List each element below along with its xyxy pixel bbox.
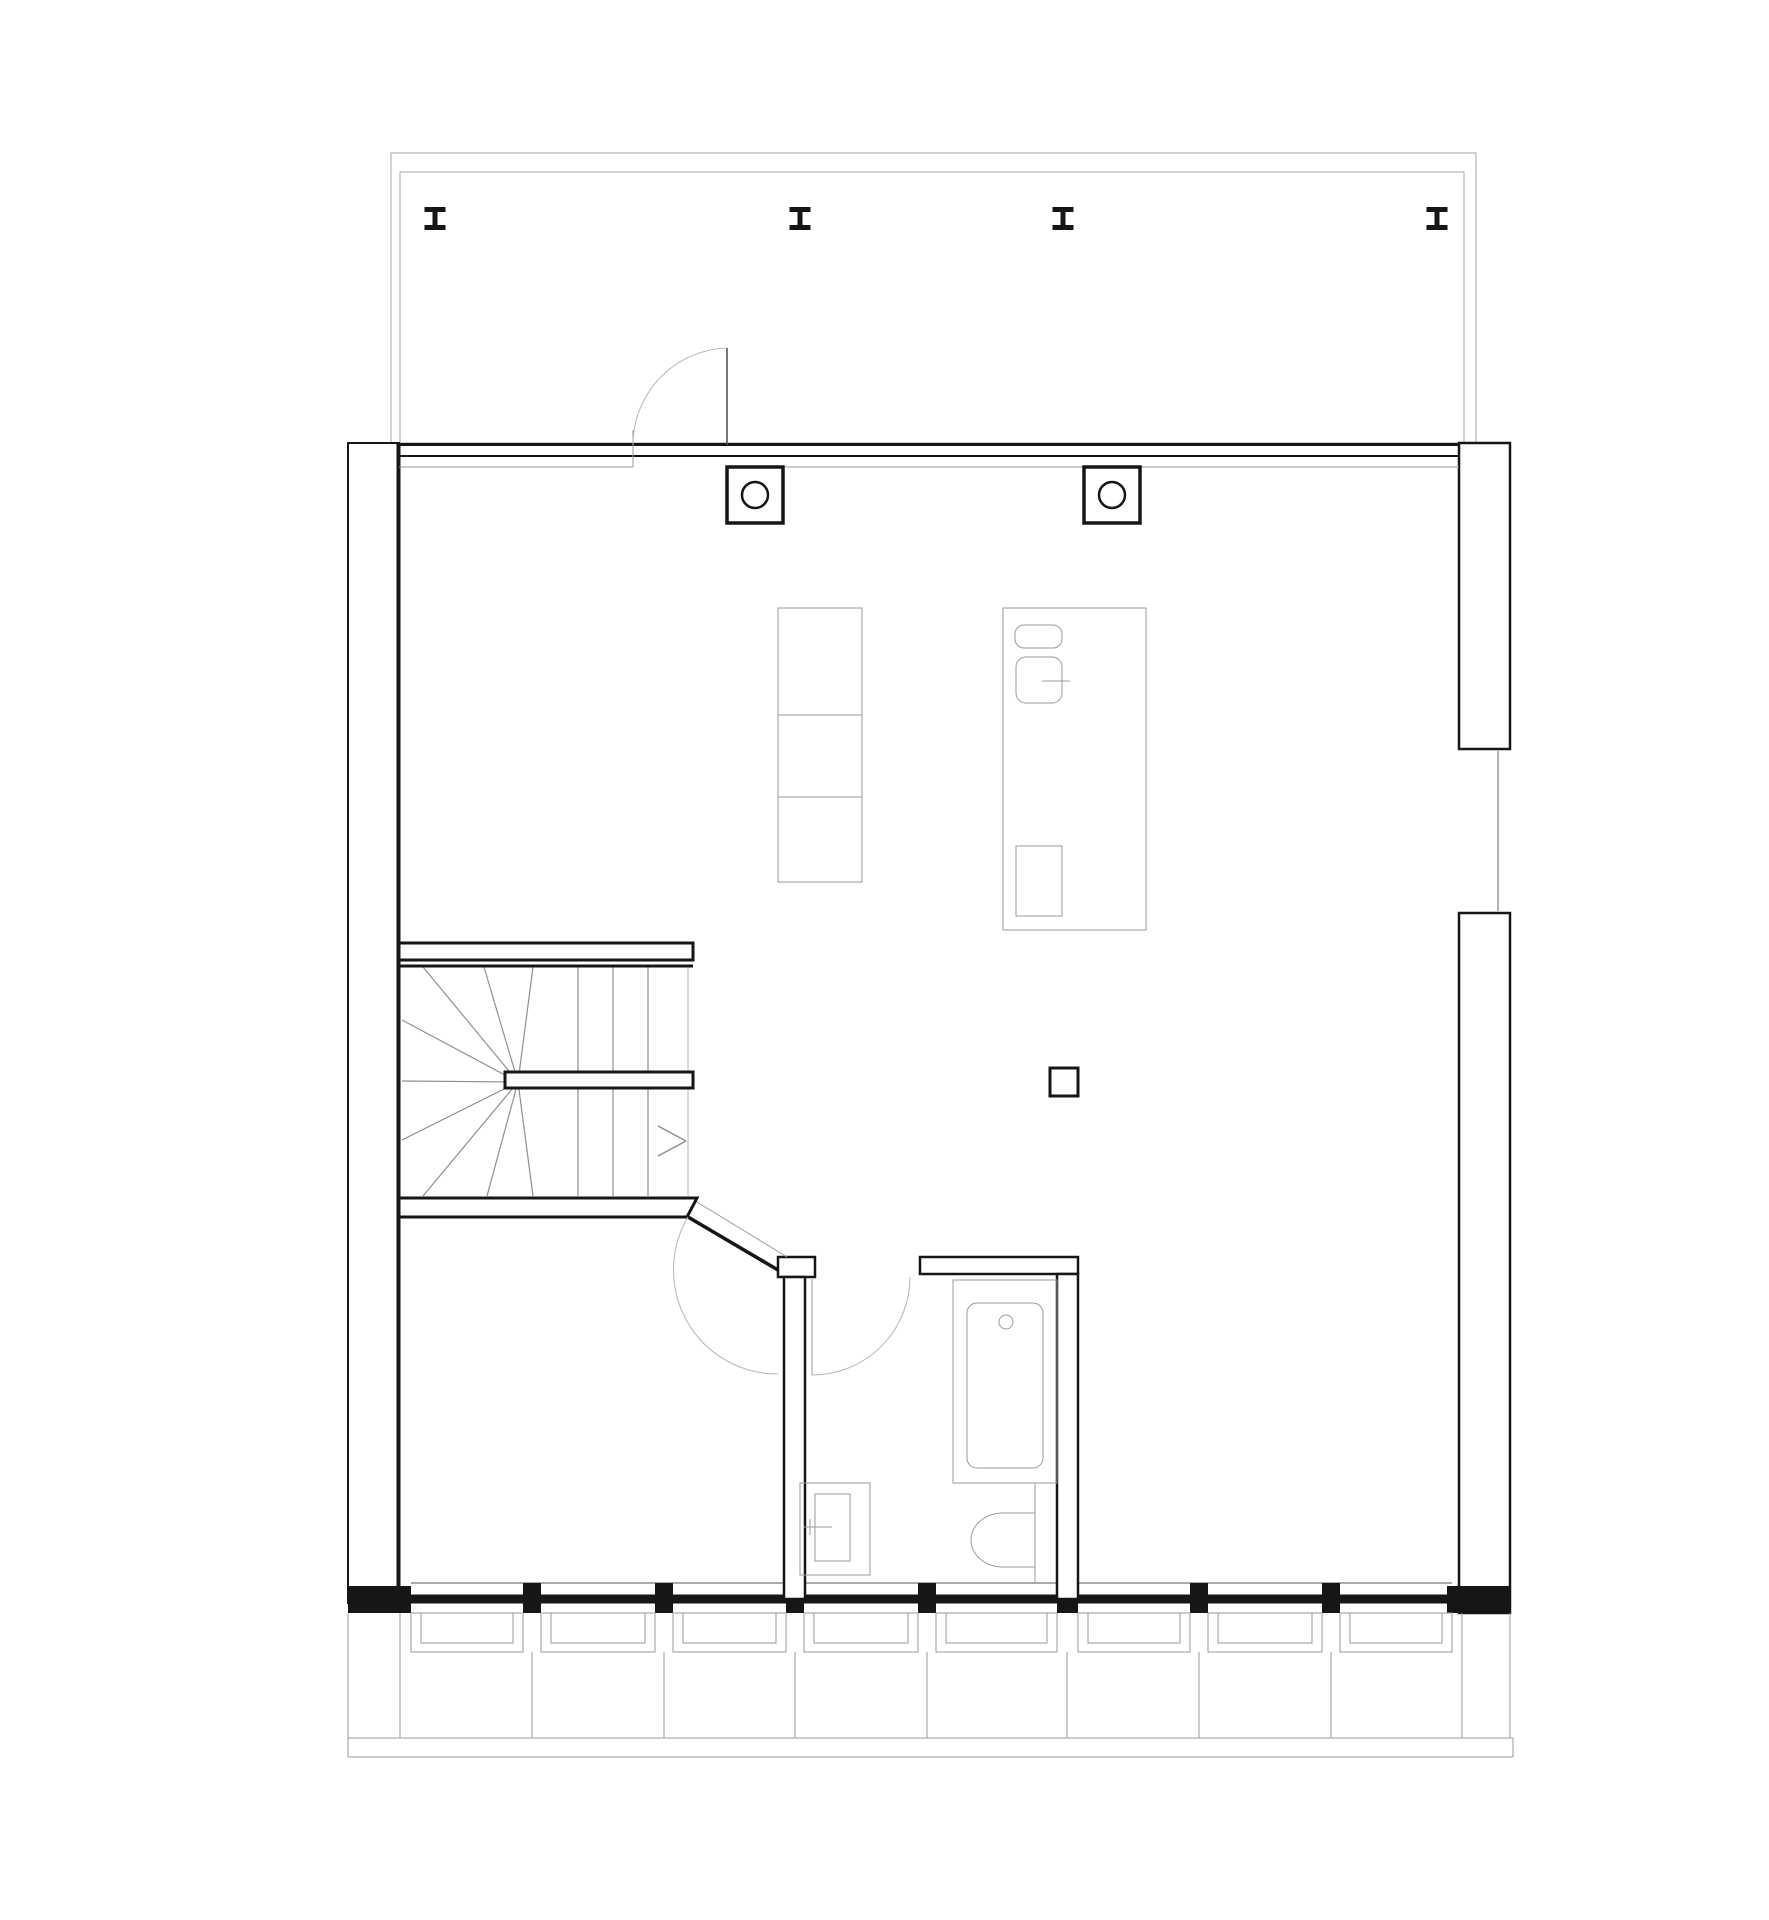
wall-corner-block bbox=[348, 1586, 411, 1613]
ibeam-web bbox=[433, 207, 438, 230]
ibeam-web bbox=[798, 207, 803, 230]
bottom-facade bbox=[348, 1583, 1513, 1757]
window-mullion bbox=[655, 1583, 673, 1613]
stair-handrail bbox=[505, 1072, 693, 1088]
winder-staircase bbox=[399, 943, 697, 1217]
column-circle bbox=[742, 482, 768, 508]
window-sill-inner bbox=[551, 1613, 645, 1643]
stair-tread-line bbox=[484, 967, 518, 1082]
bathtub-platform bbox=[953, 1280, 1057, 1483]
columns bbox=[727, 467, 1140, 1096]
window-sill-outer bbox=[541, 1613, 655, 1652]
window-sill-inner bbox=[1218, 1613, 1312, 1643]
left-exterior-wall bbox=[348, 443, 399, 1603]
bath-partitions bbox=[778, 1257, 1078, 1599]
furniture bbox=[778, 608, 1146, 930]
window-sill-outer bbox=[1340, 1613, 1452, 1652]
steel-ibeam-column bbox=[425, 207, 446, 230]
stair-direction-arrow bbox=[658, 1141, 686, 1156]
steel-ibeam-column bbox=[790, 207, 811, 230]
terrace-door-swing-arc bbox=[633, 348, 727, 445]
cabinet-stack bbox=[778, 608, 862, 882]
stair-tread-line bbox=[423, 1082, 518, 1196]
kitchen-sink-small bbox=[1015, 625, 1062, 648]
window-mullion bbox=[1190, 1583, 1208, 1613]
window-sill-inner bbox=[1088, 1613, 1180, 1643]
terrace bbox=[391, 153, 1476, 443]
window-sill-outer bbox=[673, 1613, 786, 1652]
window-sill-outer bbox=[1208, 1613, 1322, 1652]
column-circle bbox=[1099, 482, 1125, 508]
window-sill-outer bbox=[936, 1613, 1057, 1652]
stair-tread-line bbox=[518, 967, 533, 1082]
stair-direction-arrow bbox=[658, 1126, 686, 1141]
floor-plan-drawing bbox=[0, 0, 1769, 1920]
kitchen-sink-main bbox=[1016, 657, 1062, 703]
round-column-in-box bbox=[1084, 467, 1140, 523]
stair-tread-line bbox=[402, 1020, 518, 1082]
window-sill-inner bbox=[683, 1613, 776, 1643]
stair-tread-line bbox=[487, 1082, 518, 1196]
bathtub-drain bbox=[999, 1315, 1013, 1329]
window-mullion bbox=[1322, 1583, 1340, 1613]
wall-corner-block bbox=[1447, 1586, 1510, 1613]
kitchen-island bbox=[1003, 608, 1146, 930]
partition-cap bbox=[778, 1257, 815, 1277]
round-column-in-box bbox=[727, 467, 783, 523]
terrace-outer-edge bbox=[391, 153, 1476, 443]
exterior-walls bbox=[348, 443, 1510, 1613]
stair-tread-line bbox=[518, 1082, 533, 1196]
stair-tread-line bbox=[423, 967, 518, 1082]
window-sill-inner bbox=[946, 1613, 1047, 1643]
bathroom-right-wall bbox=[1057, 1274, 1078, 1599]
floor-plan-page bbox=[0, 0, 1769, 1920]
window-sill-inner bbox=[1350, 1613, 1442, 1643]
bathtub bbox=[967, 1303, 1043, 1468]
steel-ibeam-column bbox=[1427, 207, 1448, 230]
right-exterior-wall-upper bbox=[1459, 443, 1510, 749]
stair-landing-wall bbox=[399, 943, 693, 960]
window-sill-outer bbox=[411, 1613, 523, 1652]
terrace-inner-edge bbox=[400, 172, 1464, 443]
right-exterior-wall-lower bbox=[1459, 913, 1510, 1613]
window-sill-inner bbox=[421, 1613, 513, 1643]
island-appliance bbox=[1016, 846, 1062, 916]
window-mullion bbox=[918, 1583, 936, 1613]
bathroom-left-wall bbox=[784, 1277, 805, 1599]
window-mullion bbox=[523, 1583, 541, 1613]
toilet bbox=[971, 1513, 1035, 1567]
window-sill-inner bbox=[814, 1613, 908, 1643]
stair-tread-line bbox=[402, 1081, 518, 1082]
steel-ibeam-column bbox=[1053, 207, 1074, 230]
floor-duct-square bbox=[1050, 1068, 1078, 1096]
ibeam-web bbox=[1061, 207, 1066, 230]
window-sill-outer bbox=[1078, 1613, 1190, 1652]
stair-tread-line bbox=[402, 1082, 518, 1140]
bathroom-door-swing-arc bbox=[812, 1277, 910, 1375]
window-sill-outer bbox=[804, 1613, 918, 1652]
ibeam-web bbox=[1435, 207, 1440, 230]
bathroom-top-wall bbox=[920, 1257, 1078, 1274]
stair-bottom-wall bbox=[399, 1198, 697, 1217]
bathroom-fixtures bbox=[800, 1280, 1057, 1583]
